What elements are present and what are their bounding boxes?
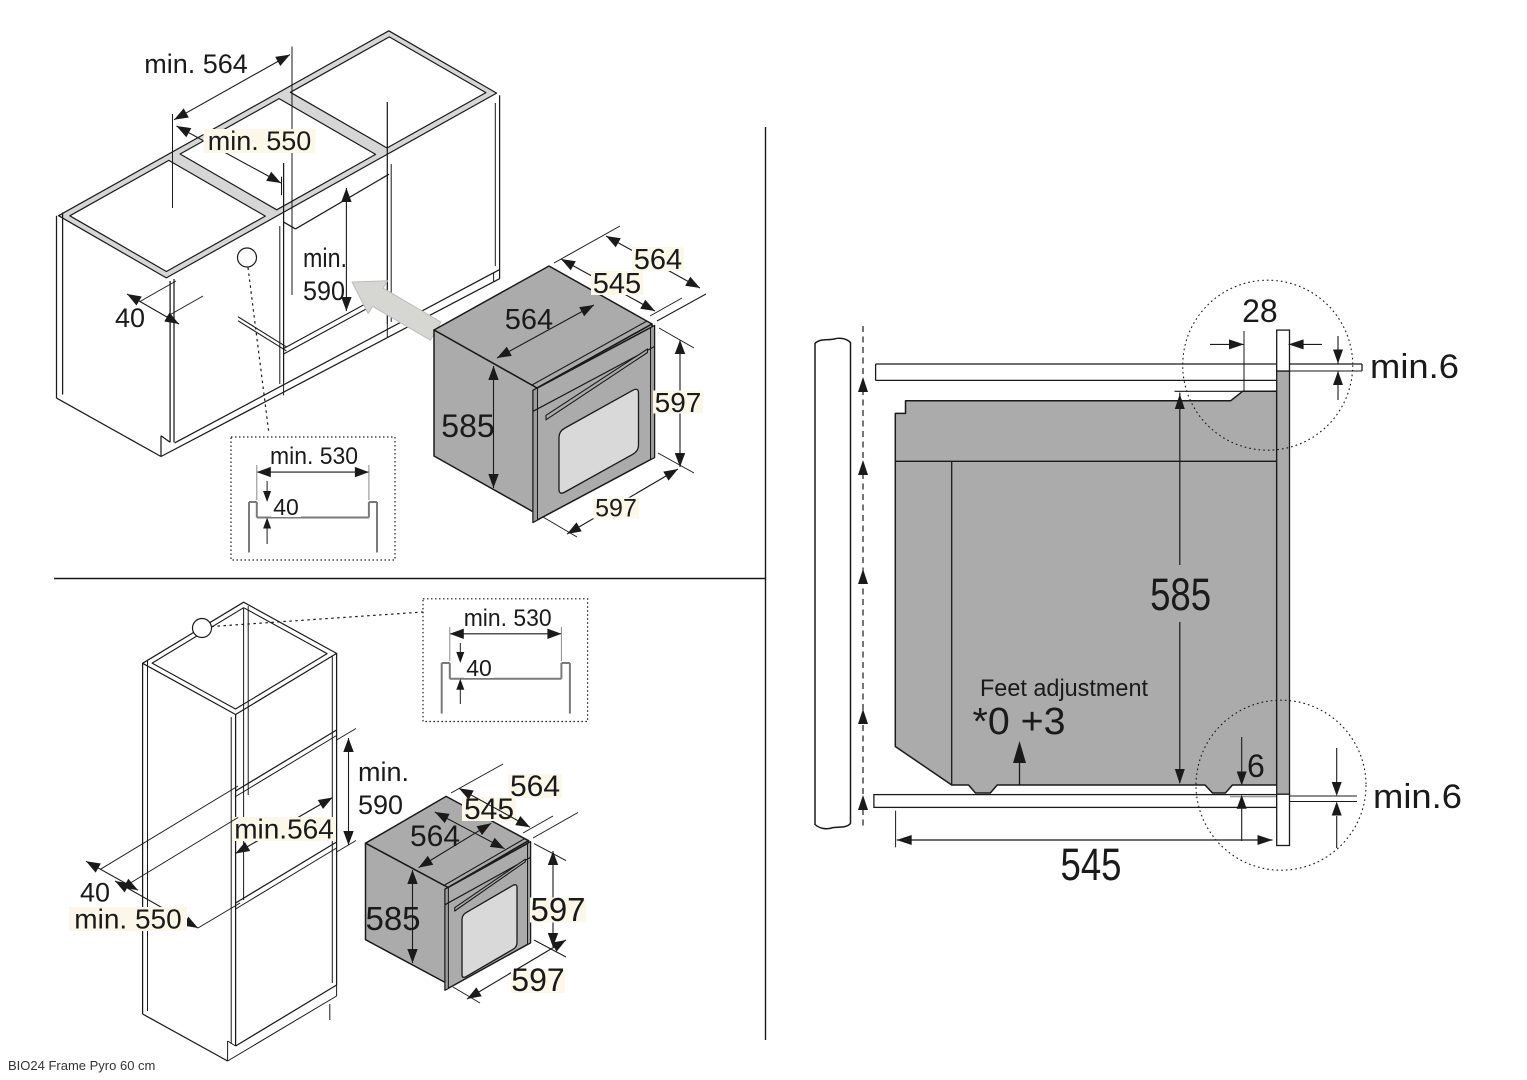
svg-text:597: 597	[511, 962, 564, 998]
svg-text:min.: min.	[303, 243, 347, 273]
svg-text:BIO24 Frame Pyro 60 cm: BIO24 Frame Pyro 60 cm	[8, 1058, 155, 1073]
svg-text:597: 597	[655, 387, 702, 418]
svg-text:545: 545	[1061, 839, 1122, 890]
svg-text:597: 597	[595, 495, 637, 523]
svg-text:*0 +3: *0 +3	[973, 701, 1066, 743]
svg-text:min. 530: min. 530	[270, 443, 358, 470]
svg-text:min.: min.	[358, 757, 409, 787]
svg-text:28: 28	[1242, 293, 1278, 329]
svg-text:min. 550: min. 550	[208, 126, 312, 156]
svg-text:585: 585	[1150, 569, 1211, 620]
svg-text:6: 6	[1247, 748, 1265, 784]
svg-text:585: 585	[441, 408, 494, 444]
svg-text:585: 585	[365, 900, 420, 937]
svg-text:597: 597	[530, 891, 585, 928]
svg-text:40: 40	[466, 655, 492, 681]
svg-text:564: 564	[505, 304, 553, 336]
svg-text:min.6: min.6	[1373, 778, 1462, 816]
svg-text:590: 590	[303, 276, 345, 306]
svg-text:min.6: min.6	[1370, 348, 1459, 386]
svg-text:564: 564	[510, 770, 560, 803]
svg-text:min. 564: min. 564	[144, 49, 248, 79]
svg-text:564: 564	[634, 244, 682, 276]
svg-text:Feet adjustment: Feet adjustment	[980, 675, 1148, 702]
svg-text:min. 530: min. 530	[464, 605, 552, 632]
svg-text:545: 545	[464, 793, 514, 826]
svg-text:590: 590	[358, 790, 403, 820]
svg-text:40: 40	[273, 494, 299, 520]
svg-text:40: 40	[115, 303, 145, 333]
svg-text:564: 564	[410, 820, 460, 853]
svg-text:min.564: min.564	[234, 814, 334, 845]
svg-text:min. 550: min. 550	[74, 904, 181, 935]
